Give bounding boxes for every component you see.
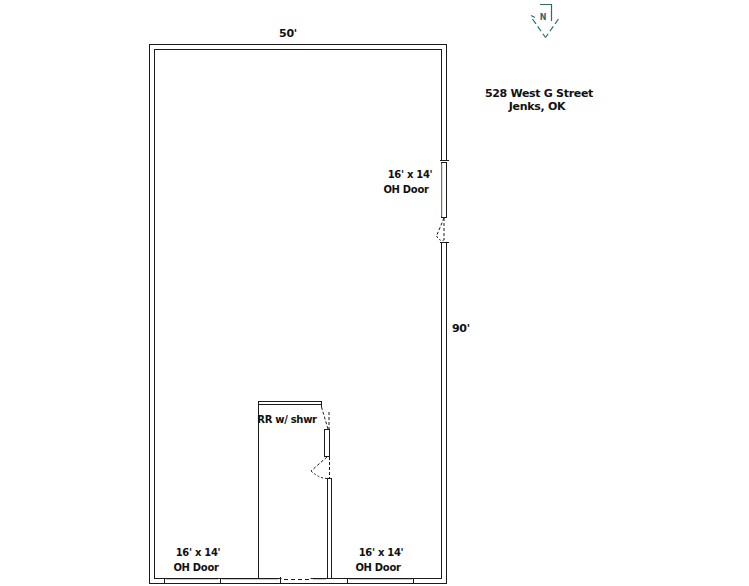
address-line2: Jenks, OK	[508, 100, 566, 113]
rr-top-wall	[259, 402, 322, 405]
door-swing-dash	[311, 457, 327, 471]
door-swing-dash	[322, 407, 329, 429]
north-label: N	[540, 13, 546, 22]
dimension-height-label: 90'	[452, 322, 470, 335]
restroom-label: RR w/ shwr	[257, 414, 317, 425]
rr-door-leaf	[325, 430, 330, 457]
bottom-left-door-type-label: OH Door	[173, 562, 219, 573]
bottom-right-door-type-label: OH Door	[355, 562, 401, 573]
exterior-wall-outer	[150, 45, 447, 584]
north-arrow-dash	[531, 16, 535, 18]
dimension-width-label: 50'	[279, 27, 297, 40]
bottom-right-door-size-label: 16' x 14'	[359, 547, 404, 558]
rr-right-wall	[328, 479, 332, 579]
right-door-size-label: 16' x 14'	[388, 169, 433, 180]
north-arrow-right-arm	[546, 19, 559, 38]
right-door-type-label: OH Door	[383, 184, 429, 195]
door-swing-arc	[311, 471, 330, 478]
plan-labels: 50' 90' 528 West G Street Jenks, OK 16' …	[173, 27, 593, 573]
restroom-walls	[259, 402, 332, 580]
address-line1: 528 West G Street	[485, 87, 593, 100]
exterior-wall-inner	[155, 50, 442, 579]
floorplan-page: N 50' 90' 528 West G Street Jenks, OK 16…	[0, 0, 749, 586]
floorplan-drawing: N 50' 90' 528 West G Street Jenks, OK 16…	[0, 0, 749, 586]
bottom-left-door-size-label: 16' x 14'	[176, 547, 221, 558]
building-outline	[150, 45, 447, 584]
